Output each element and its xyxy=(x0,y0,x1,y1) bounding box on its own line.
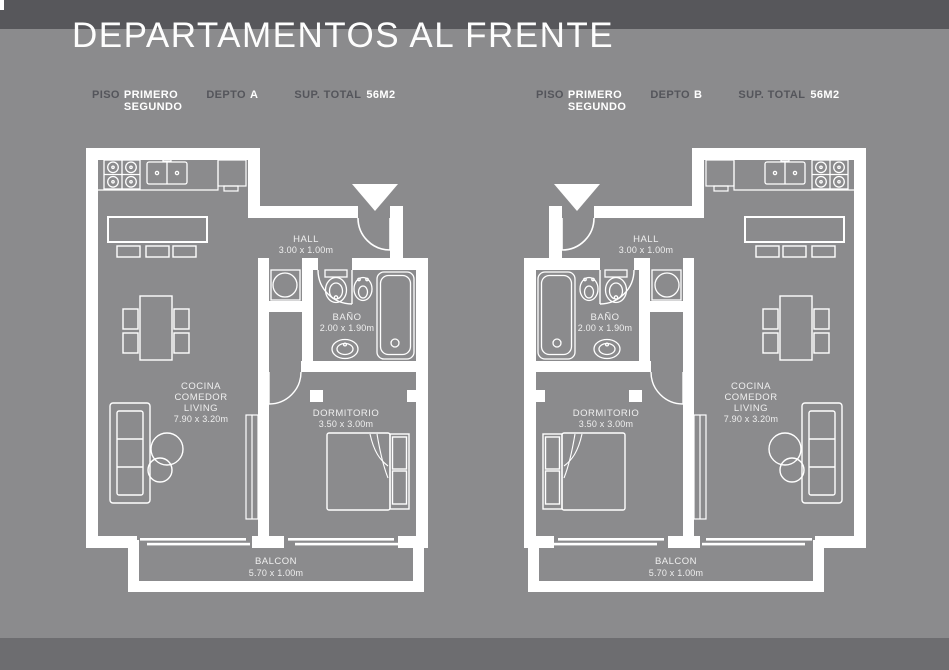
hall-label-a: HALL xyxy=(293,234,319,245)
living-dims-a: 7.90 x 3.20m xyxy=(174,414,228,424)
living-label3-b: LIVING xyxy=(734,403,768,414)
floor-plan-a xyxy=(86,148,428,592)
hall-dims-a: 3.00 x 1.00m xyxy=(279,245,333,255)
hall-label-b: HALL xyxy=(633,234,659,245)
floor-plan-b xyxy=(524,148,866,592)
bano-dims-a: 2.00 x 1.90m xyxy=(320,323,374,333)
floor-plan-b-labels: HALL 3.00 x 1.00m BAÑO 2.00 x 1.90m COCI… xyxy=(573,234,779,578)
dormitorio-dims-a: 3.50 x 3.00m xyxy=(319,419,373,429)
dormitorio-label-b: DORMITORIO xyxy=(573,408,640,419)
balcon-dims-b: 5.70 x 1.00m xyxy=(649,568,703,578)
living-label2-a: COMEDOR xyxy=(174,392,227,403)
living-label1-b: COCINA xyxy=(731,381,771,392)
living-label3-a: LIVING xyxy=(184,403,218,414)
bano-label-a: BAÑO xyxy=(333,312,362,323)
bano-dims-b: 2.00 x 1.90m xyxy=(578,323,632,333)
balcon-dims-a: 5.70 x 1.00m xyxy=(249,568,303,578)
living-label2-b: COMEDOR xyxy=(724,392,777,403)
floor-plans-canvas: HALL 3.00 x 1.00m BAÑO 2.00 x 1.90m COCI… xyxy=(0,0,949,670)
floor-plan-a-labels: HALL 3.00 x 1.00m BAÑO 2.00 x 1.90m COCI… xyxy=(174,234,380,578)
hall-dims-b: 3.00 x 1.00m xyxy=(619,245,673,255)
dormitorio-label-a: DORMITORIO xyxy=(313,408,380,419)
living-label1-a: COCINA xyxy=(181,381,221,392)
brochure-page: DEPARTAMENTOS AL FRENTE PISO PRIMERO SEG… xyxy=(0,0,949,670)
balcon-label-b: BALCON xyxy=(655,556,697,567)
living-dims-b: 7.90 x 3.20m xyxy=(724,414,778,424)
balcon-label-a: BALCON xyxy=(255,556,297,567)
dormitorio-dims-b: 3.50 x 3.00m xyxy=(579,419,633,429)
bano-label-b: BAÑO xyxy=(591,312,620,323)
